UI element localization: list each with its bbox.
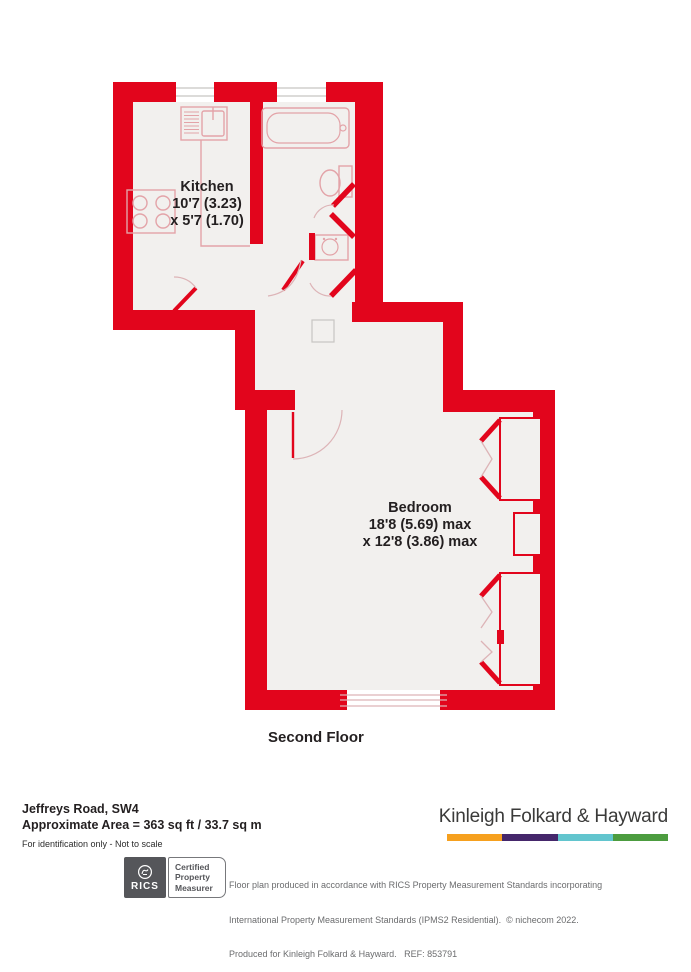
bedroom-label: Bedroom bbox=[388, 500, 452, 516]
address-line: Jeffreys Road, SW4 bbox=[22, 801, 262, 817]
area-line: Approximate Area = 363 sq ft / 33.7 sq m bbox=[22, 817, 262, 833]
fine-print-line: Floor plan produced in accordance with R… bbox=[229, 880, 602, 892]
kitchen-window bbox=[176, 82, 214, 102]
rics-label-line: Certified bbox=[175, 862, 225, 873]
floor-plan: Kitchen 10'7 (3.23) x 5'7 (1.70) Bedroom… bbox=[0, 0, 691, 775]
brand-name: Kinleigh Folkard & Hayward bbox=[439, 806, 668, 828]
rics-label: Certified Property Measurer bbox=[168, 857, 226, 898]
bathroom-window bbox=[277, 82, 326, 102]
kitchen-label: Kitchen bbox=[180, 179, 233, 195]
bedroom-dims-2: x 12'8 (3.86) max bbox=[363, 534, 478, 550]
rics-logo: RICS bbox=[124, 857, 166, 898]
brand-bar-segment-orange bbox=[447, 834, 502, 841]
kitchen-dims-2: x 5'7 (1.70) bbox=[170, 213, 244, 229]
brand-bar-segment-teal bbox=[558, 834, 613, 841]
disclaimer-line: For identification only - Not to scale bbox=[22, 836, 262, 852]
bedroom-dims-1: 18'8 (5.69) max bbox=[369, 517, 472, 533]
rics-abbr: RICS bbox=[131, 881, 159, 892]
fine-print-line: Produced for Kinleigh Folkard & Hayward.… bbox=[229, 949, 602, 961]
floorplan-page: { "plan": { "floor_label": "Second Floor… bbox=[0, 0, 691, 900]
address-block: Jeffreys Road, SW4 Approximate Area = 36… bbox=[22, 801, 262, 852]
brand-color-bar bbox=[447, 834, 668, 841]
brand-bar-segment-green bbox=[613, 834, 668, 841]
bedroom-wall-recess bbox=[514, 513, 541, 555]
rics-badge: RICS Certified Property Measurer bbox=[124, 857, 226, 898]
rics-lion-icon bbox=[137, 864, 153, 880]
bedroom-bottom-window bbox=[340, 690, 447, 710]
rics-label-line: Measurer bbox=[175, 883, 225, 894]
hall-cupboard bbox=[312, 320, 334, 342]
brand-block: Kinleigh Folkard & Hayward bbox=[439, 806, 668, 841]
rics-label-line: Property bbox=[175, 872, 225, 883]
kitchen-dims-1: 10'7 (3.23) bbox=[172, 196, 242, 212]
fine-print-line: International Property Measurement Stand… bbox=[229, 915, 602, 927]
fine-print: Floor plan produced in accordance with R… bbox=[229, 857, 602, 972]
brand-bar-segment-purple bbox=[502, 834, 557, 841]
floor-label: Second Floor bbox=[268, 729, 364, 746]
